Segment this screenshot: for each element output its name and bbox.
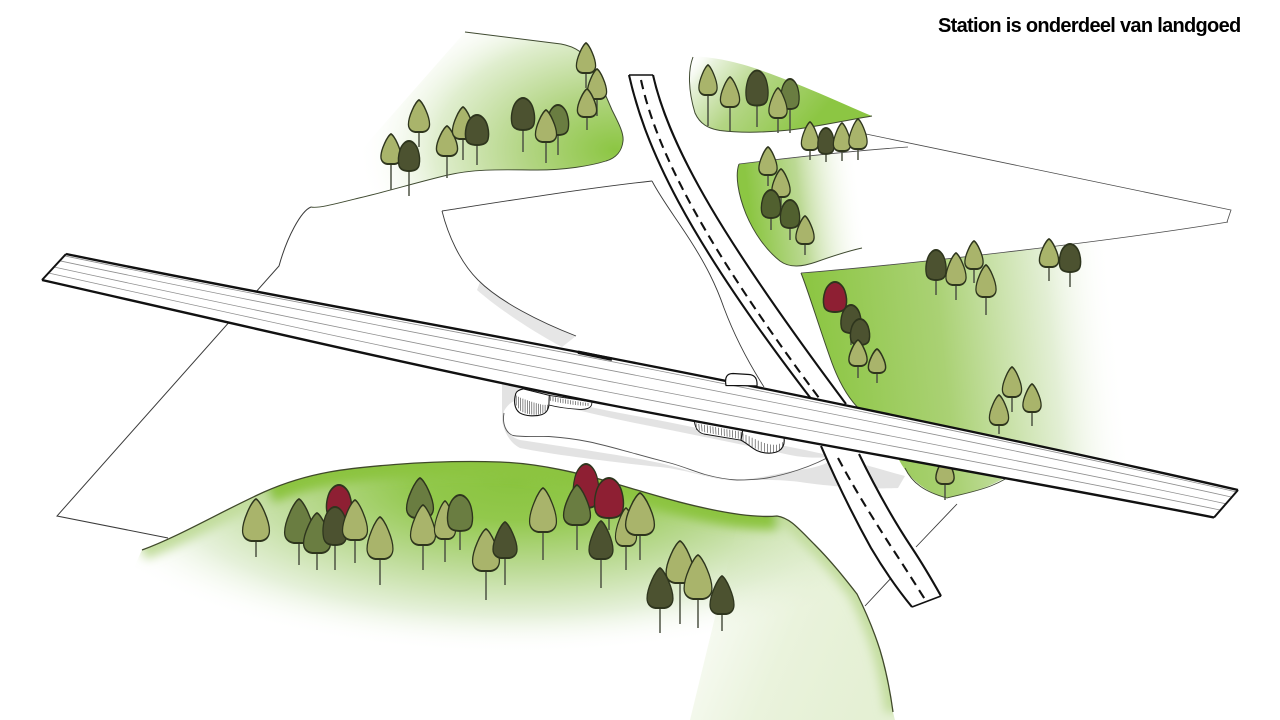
svg-text:Station is onderdeel van landg: Station is onderdeel van landgoed	[938, 15, 1241, 37]
